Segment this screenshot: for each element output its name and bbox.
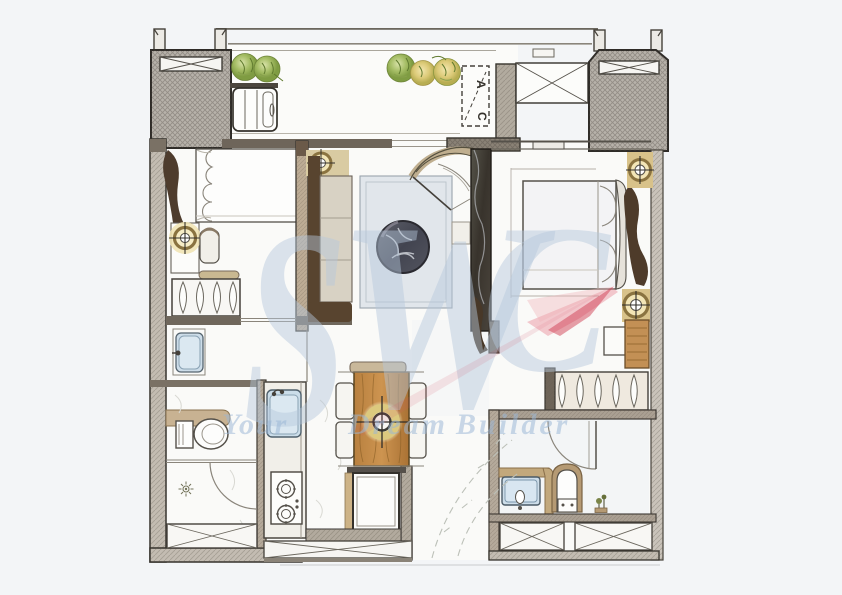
svg-text:Your: Your: [222, 408, 288, 441]
svg-text:C: C: [475, 112, 489, 121]
svg-text:Builder: Builder: [455, 408, 570, 441]
svg-text:Dream: Dream: [347, 408, 448, 441]
svg-text:A: A: [474, 80, 488, 89]
